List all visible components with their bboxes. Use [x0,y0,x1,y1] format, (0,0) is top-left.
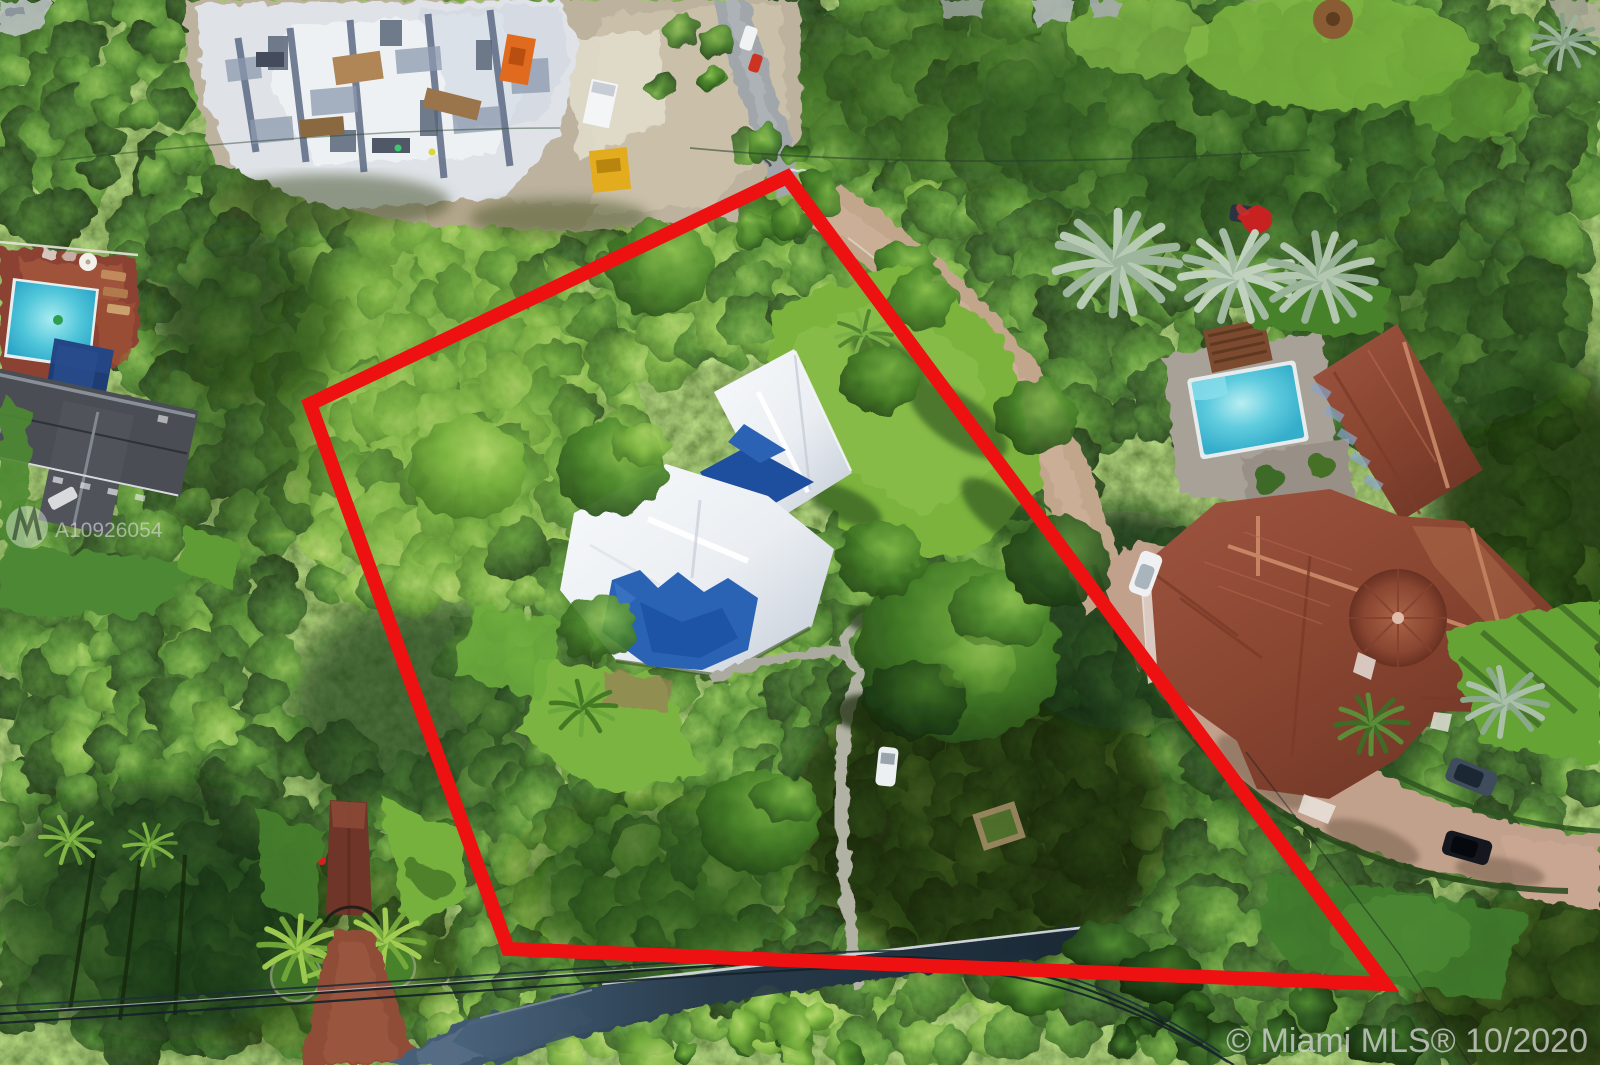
svg-text:© Miami MLS® 10/2020: © Miami MLS® 10/2020 [1226,1022,1588,1060]
svg-text:A10926054: A10926054 [55,519,163,542]
